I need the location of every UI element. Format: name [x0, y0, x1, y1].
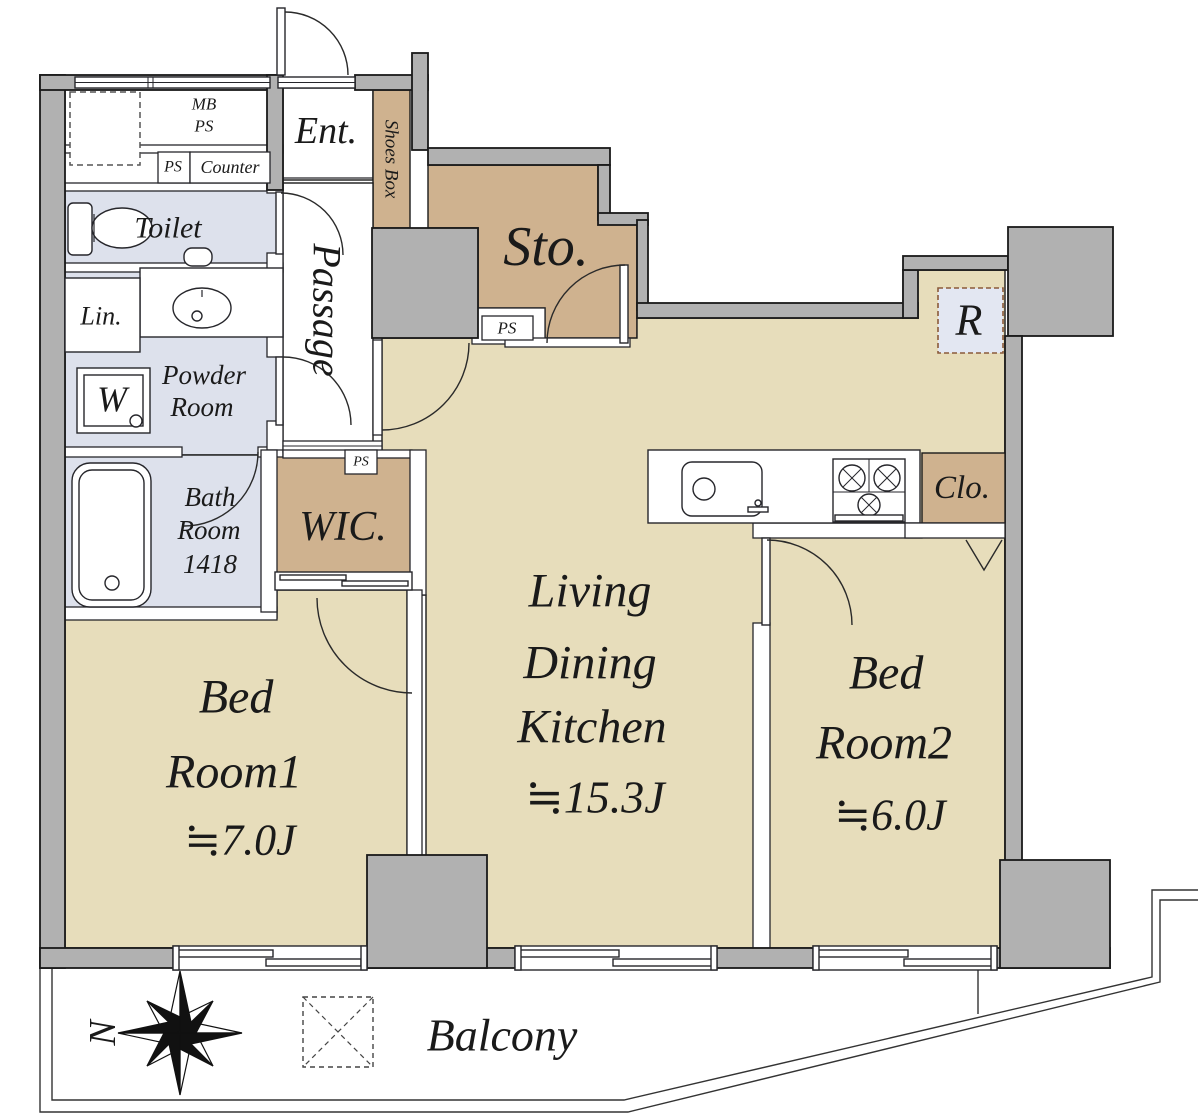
wall-storage-top [428, 148, 610, 165]
ldk-size-label: ≒15.3J [525, 772, 667, 823]
window-top [75, 77, 270, 88]
wall-segment [373, 340, 382, 435]
bath-room-label-1: Bath [185, 482, 236, 512]
wall-step [903, 270, 918, 318]
window-bedroom2 [813, 946, 997, 970]
toilet-hand-basin [184, 248, 212, 266]
wic-label: WIC. [299, 504, 387, 550]
wall-segment [598, 165, 610, 220]
wall-stub [412, 53, 428, 150]
north-label: N [82, 1018, 124, 1047]
bedroom2-label-1: Bed [849, 647, 925, 700]
bedroom2-label-2: Room2 [815, 717, 952, 770]
wall-segment [65, 447, 182, 457]
bedroom1-label-1: Bed [199, 671, 275, 724]
wall-right [1005, 336, 1022, 863]
linen-label: Lin. [79, 302, 121, 331]
window-bedroom1 [173, 946, 367, 970]
floor-plan: MB PS PS Counter Toilet Ent. Shoes Box P… [0, 0, 1200, 1118]
wic-sliding-door [275, 572, 412, 590]
vanity-sink-icon [173, 288, 231, 328]
powder-room-label-2: Room [170, 392, 234, 422]
counter-label: Counter [200, 157, 260, 177]
bathtub-icon [72, 463, 151, 607]
bedroom1-label-2: Room1 [165, 746, 302, 799]
passage-label: Passage [305, 242, 350, 376]
wall-segment [65, 607, 277, 620]
meter-box [70, 92, 140, 165]
pipe-space-label: PS [163, 159, 182, 176]
meter-box-label-2: PS [194, 117, 214, 136]
bedroom2-door-leaf [762, 538, 770, 625]
pipe-space-storage-label: PS [497, 319, 517, 338]
closet-track [905, 523, 1005, 538]
bedroom1-size-label: ≒7.0J [184, 816, 298, 865]
wall-ldk-top [637, 303, 918, 318]
powder-room-label-1: Powder [161, 360, 246, 390]
floor-plan-svg: MB PS PS Counter Toilet Ent. Shoes Box P… [0, 0, 1200, 1118]
powder-door-leaf [276, 357, 283, 425]
entrance-label: Ent. [294, 110, 357, 152]
entrance-sill [278, 77, 355, 88]
pipe-space-wic-label: PS [352, 455, 369, 470]
wall-segment [65, 183, 278, 191]
ldk-label-3: Kitchen [516, 701, 666, 754]
meter-box-label-1: MB [191, 95, 217, 114]
wall-top-right [903, 256, 1008, 270]
wall-segment [637, 220, 648, 310]
shoes-box-label: Shoes Box [381, 120, 402, 199]
kitchen-counter [648, 450, 920, 523]
storage-label: Sto. [503, 216, 589, 278]
wall-segment [753, 623, 770, 948]
ldk-bedroom2-floor [382, 270, 1005, 948]
balcony-label: Balcony [427, 1010, 578, 1061]
toilet-label: Toilet [134, 212, 202, 245]
pillar-top-right [1008, 227, 1113, 336]
wall-block-entry [372, 228, 478, 338]
ldk-label-2: Dining [522, 637, 656, 690]
window-ldk [515, 946, 717, 970]
stove-icon [833, 459, 905, 522]
pillar-bottom-right [1000, 860, 1110, 968]
bath-room-label-2: Room [177, 515, 241, 545]
refrigerator-label: R [955, 296, 983, 345]
pillar-bottom-center [367, 855, 487, 968]
bath-size-label: 1418 [183, 549, 238, 579]
wall-left [40, 75, 65, 968]
wall-segment [753, 523, 922, 538]
toilet-door-leaf [276, 192, 283, 254]
washing-machine-label: W [97, 379, 130, 419]
entrance-door-leaf [277, 8, 285, 75]
kitchen-sink-icon [682, 462, 768, 516]
bedroom2-size-label: ≒6.0J [834, 791, 948, 840]
closet-label: Clo. [934, 470, 990, 506]
storage-door-leaf [620, 265, 628, 343]
ldk-label-1: Living [528, 565, 652, 618]
